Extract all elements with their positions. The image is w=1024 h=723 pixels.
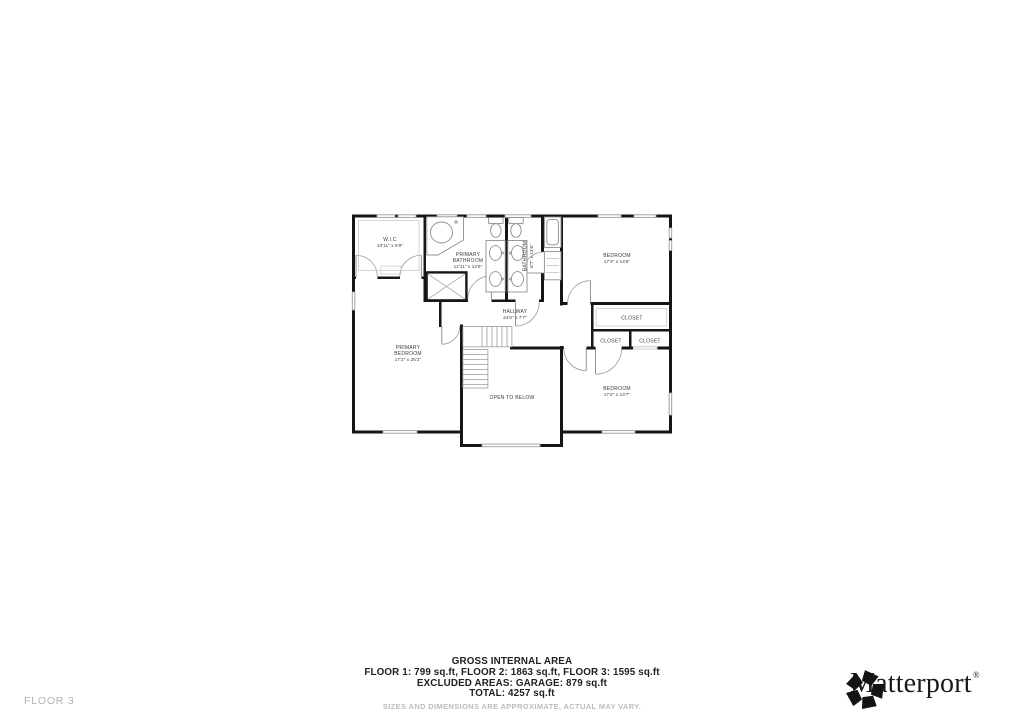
room-dims-bathroom: 8'7" x 13'6" [529,244,534,268]
linen-closet [544,252,561,280]
staircase [463,326,512,388]
matterport-pinwheel-icon [842,668,888,712]
brand-logo: Matterport® [842,668,980,700]
registered-mark: ® [973,670,980,680]
floor-plan-page: W.I.C 10'11" x 9'9" PRIMARY BATHROOM 12'… [0,0,1024,723]
room-label-open-to-below: OPEN TO BELOW [489,395,534,401]
room-label-closet-right: CLOSET [639,339,661,345]
shower [427,272,467,300]
bathtub [544,217,561,247]
room-dims-primary-bedroom: 17'2" x 25'2" [395,357,422,362]
room-label-closet-top: CLOSET [621,316,643,322]
corner-tub [427,217,464,255]
floor-plan-drawing: W.I.C 10'11" x 9'9" PRIMARY BATHROOM 12'… [0,0,1024,723]
room-dims-hallway: 24'6" x 7'7" [503,315,527,320]
room-dims-bedroom-top: 17'3" x 14'8" [604,259,631,264]
room-dims-wic: 10'11" x 9'9" [377,243,403,248]
room-dims-primary-bathroom: 12'11" x 13'6" [454,264,483,269]
room-label-closet-left: CLOSET [600,339,622,345]
room-dims-bedroom-bottom: 17'2" x 13'7" [604,392,631,397]
floor-label: FLOOR 3 [24,695,75,707]
room-label-bathroom: BATHROOM [523,241,529,272]
